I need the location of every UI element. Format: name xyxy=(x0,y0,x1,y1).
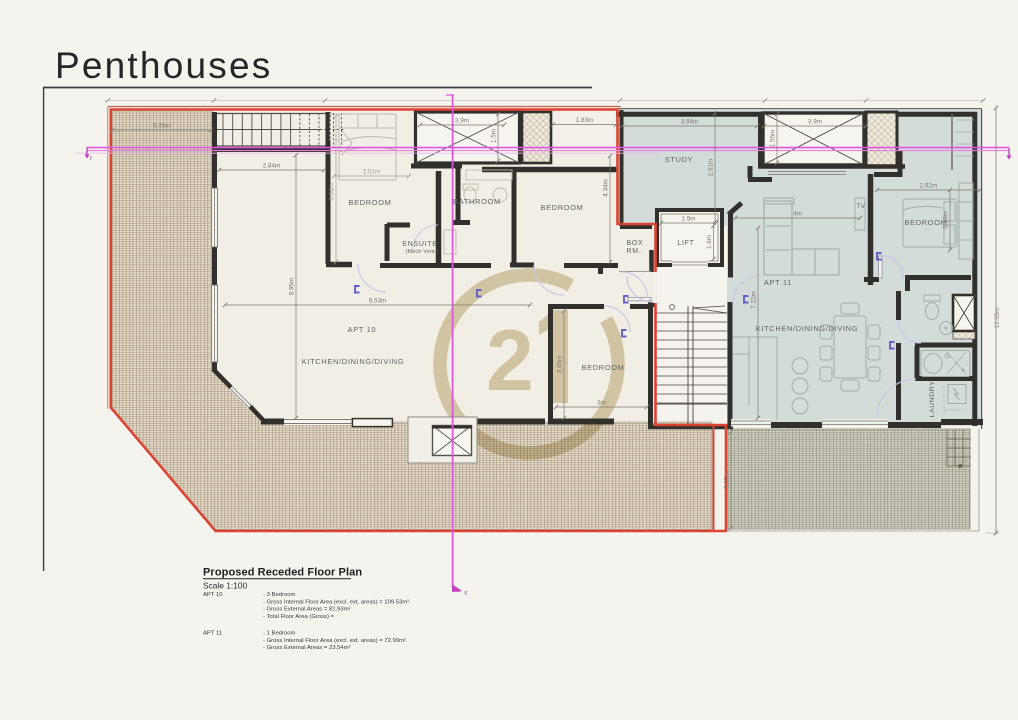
svg-text:4.04m: 4.04m xyxy=(329,183,336,201)
svg-text:3.05m: 3.05m xyxy=(557,356,564,374)
svg-text:- Gross External Areas = 23.54: - Gross External Areas = 23.54m² xyxy=(263,645,351,651)
svg-text:2.92m: 2.92m xyxy=(920,183,938,190)
svg-text:3.94m: 3.94m xyxy=(681,119,699,126)
svg-text:1.55m: 1.55m xyxy=(770,130,777,148)
svg-text:BEDROOM: BEDROOM xyxy=(581,363,624,372)
svg-text:8.95m: 8.95m xyxy=(289,278,296,296)
svg-text:2.61m: 2.61m xyxy=(708,159,715,177)
svg-text:APT 11: APT 11 xyxy=(764,278,792,287)
svg-text:2: 2 xyxy=(486,313,534,409)
svg-text:4.34m: 4.34m xyxy=(603,179,610,197)
svg-text:12.55m: 12.55m xyxy=(994,307,1001,328)
svg-text:3m: 3m xyxy=(597,400,606,407)
svg-text:APT 10: APT 10 xyxy=(203,592,223,598)
svg-text:KITCHEN/DINING/DIVING: KITCHEN/DINING/DIVING xyxy=(756,324,859,333)
svg-text:1.83m: 1.83m xyxy=(576,117,594,124)
svg-text:LAUNDRY: LAUNDRY xyxy=(929,381,936,418)
svg-text:9.53m: 9.53m xyxy=(369,298,387,305)
svg-text:1.5m: 1.5m xyxy=(491,129,498,143)
svg-text:STUDY: STUDY xyxy=(665,155,694,164)
svg-text:3.35m: 3.35m xyxy=(724,471,731,489)
svg-text:- 3 Bedroom: - 3 Bedroom xyxy=(263,592,296,598)
svg-text:TV: TV xyxy=(856,204,865,210)
svg-text:BOX: BOX xyxy=(627,240,644,247)
svg-text:2.84m: 2.84m xyxy=(263,163,281,170)
svg-text:Proposed Receded Floor Plan: Proposed Receded Floor Plan xyxy=(203,567,362,579)
svg-text:BEDROOM: BEDROOM xyxy=(540,203,583,212)
svg-text:KITCHEN/DINING/DIVING: KITCHEN/DINING/DIVING xyxy=(302,357,405,366)
svg-text:BEDROOM: BEDROOM xyxy=(904,218,947,227)
svg-text:7.22m: 7.22m xyxy=(751,291,758,309)
svg-text:- Gross External Areas = 81.93: - Gross External Areas = 81.93m² xyxy=(263,607,351,613)
svg-text:(Mech Vent.): (Mech Vent.) xyxy=(406,249,439,255)
svg-text:- Gross Internal Floor Area (e: - Gross Internal Floor Area (excl. ext. … xyxy=(263,599,409,605)
svg-text:RM.: RM. xyxy=(627,248,642,255)
svg-text:- 1 Bedroom: - 1 Bedroom xyxy=(263,631,296,637)
svg-text:y: y xyxy=(90,155,93,161)
svg-text:APT 10: APT 10 xyxy=(348,325,377,334)
svg-text:- Total Floor Area (Gross) =: - Total Floor Area (Gross) = xyxy=(263,614,335,620)
svg-text:ENSUITE: ENSUITE xyxy=(402,241,437,248)
svg-text:- Gross Internal Floor Area (e: - Gross Internal Floor Area (excl. ext. … xyxy=(263,638,406,644)
svg-text:2.51m: 2.51m xyxy=(363,169,381,176)
svg-text:LIFT: LIFT xyxy=(677,240,694,247)
svg-text:APT 11: APT 11 xyxy=(203,631,222,637)
svg-text:3.9m: 3.9m xyxy=(808,119,822,126)
svg-text:BATHROOM: BATHROOM xyxy=(453,197,501,206)
svg-text:3.9m: 3.9m xyxy=(455,118,469,125)
svg-text:3.35m: 3.35m xyxy=(153,123,171,130)
svg-text:4m: 4m xyxy=(793,211,802,218)
svg-text:Penthouses: Penthouses xyxy=(55,45,272,86)
svg-text:1.6m: 1.6m xyxy=(706,235,713,249)
svg-text:Scale 1:100: Scale 1:100 xyxy=(203,581,248,591)
svg-text:BEDROOM: BEDROOM xyxy=(348,198,391,207)
svg-text:1.9m: 1.9m xyxy=(682,216,696,223)
